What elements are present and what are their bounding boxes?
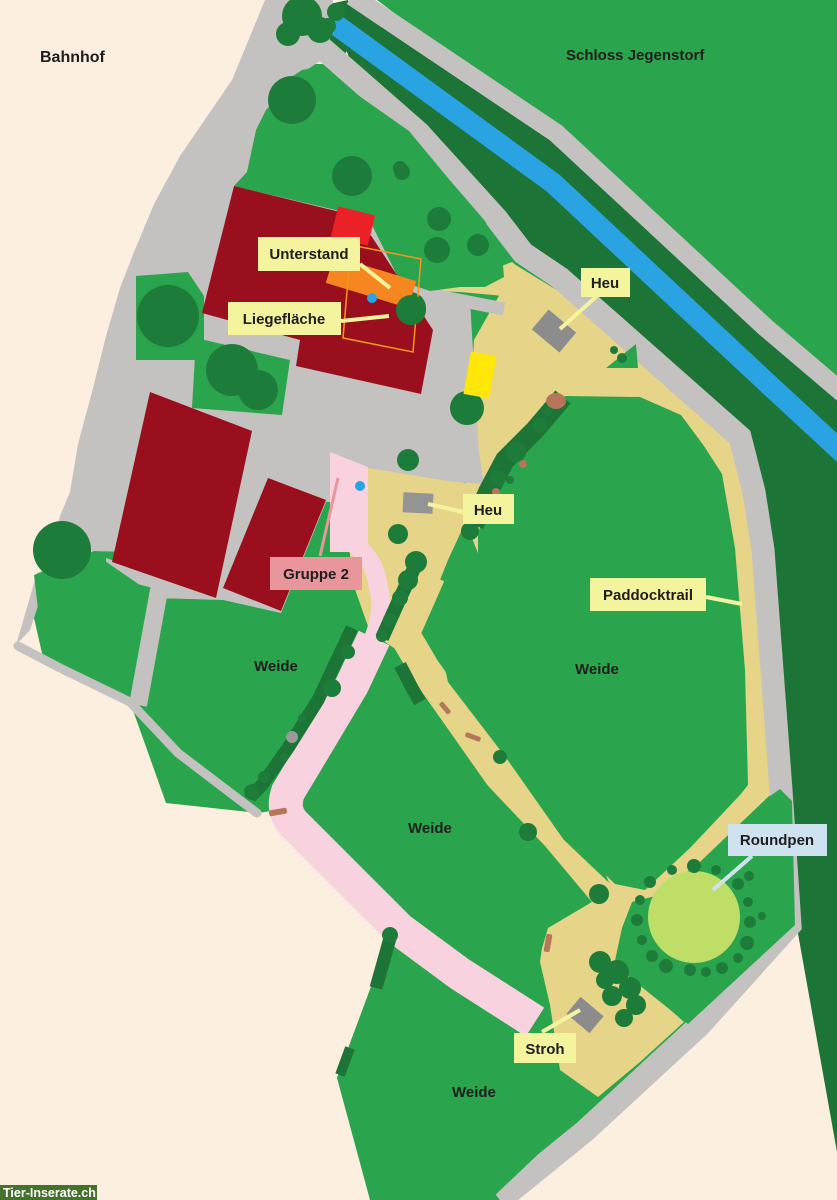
svg-text:Schloss Jegenstorf: Schloss Jegenstorf — [566, 47, 705, 64]
svg-text:Weide: Weide — [452, 1084, 496, 1101]
svg-text:Weide: Weide — [408, 820, 452, 837]
svg-text:Weide: Weide — [254, 658, 298, 675]
svg-text:Unterstand: Unterstand — [269, 246, 348, 263]
svg-text:Paddocktrail: Paddocktrail — [603, 587, 693, 604]
svg-text:Bahnhof: Bahnhof — [40, 49, 106, 66]
svg-text:Weide: Weide — [575, 661, 619, 678]
svg-text:Gruppe 2: Gruppe 2 — [283, 566, 349, 583]
svg-text:Roundpen: Roundpen — [740, 832, 814, 849]
svg-text:Heu: Heu — [591, 275, 619, 292]
svg-text:Tier-Inserate.ch: Tier-Inserate.ch — [3, 1186, 96, 1200]
svg-text:Heu: Heu — [474, 502, 502, 519]
svg-text:Stroh: Stroh — [525, 1041, 564, 1058]
svg-text:Liegefläche: Liegefläche — [243, 311, 326, 328]
